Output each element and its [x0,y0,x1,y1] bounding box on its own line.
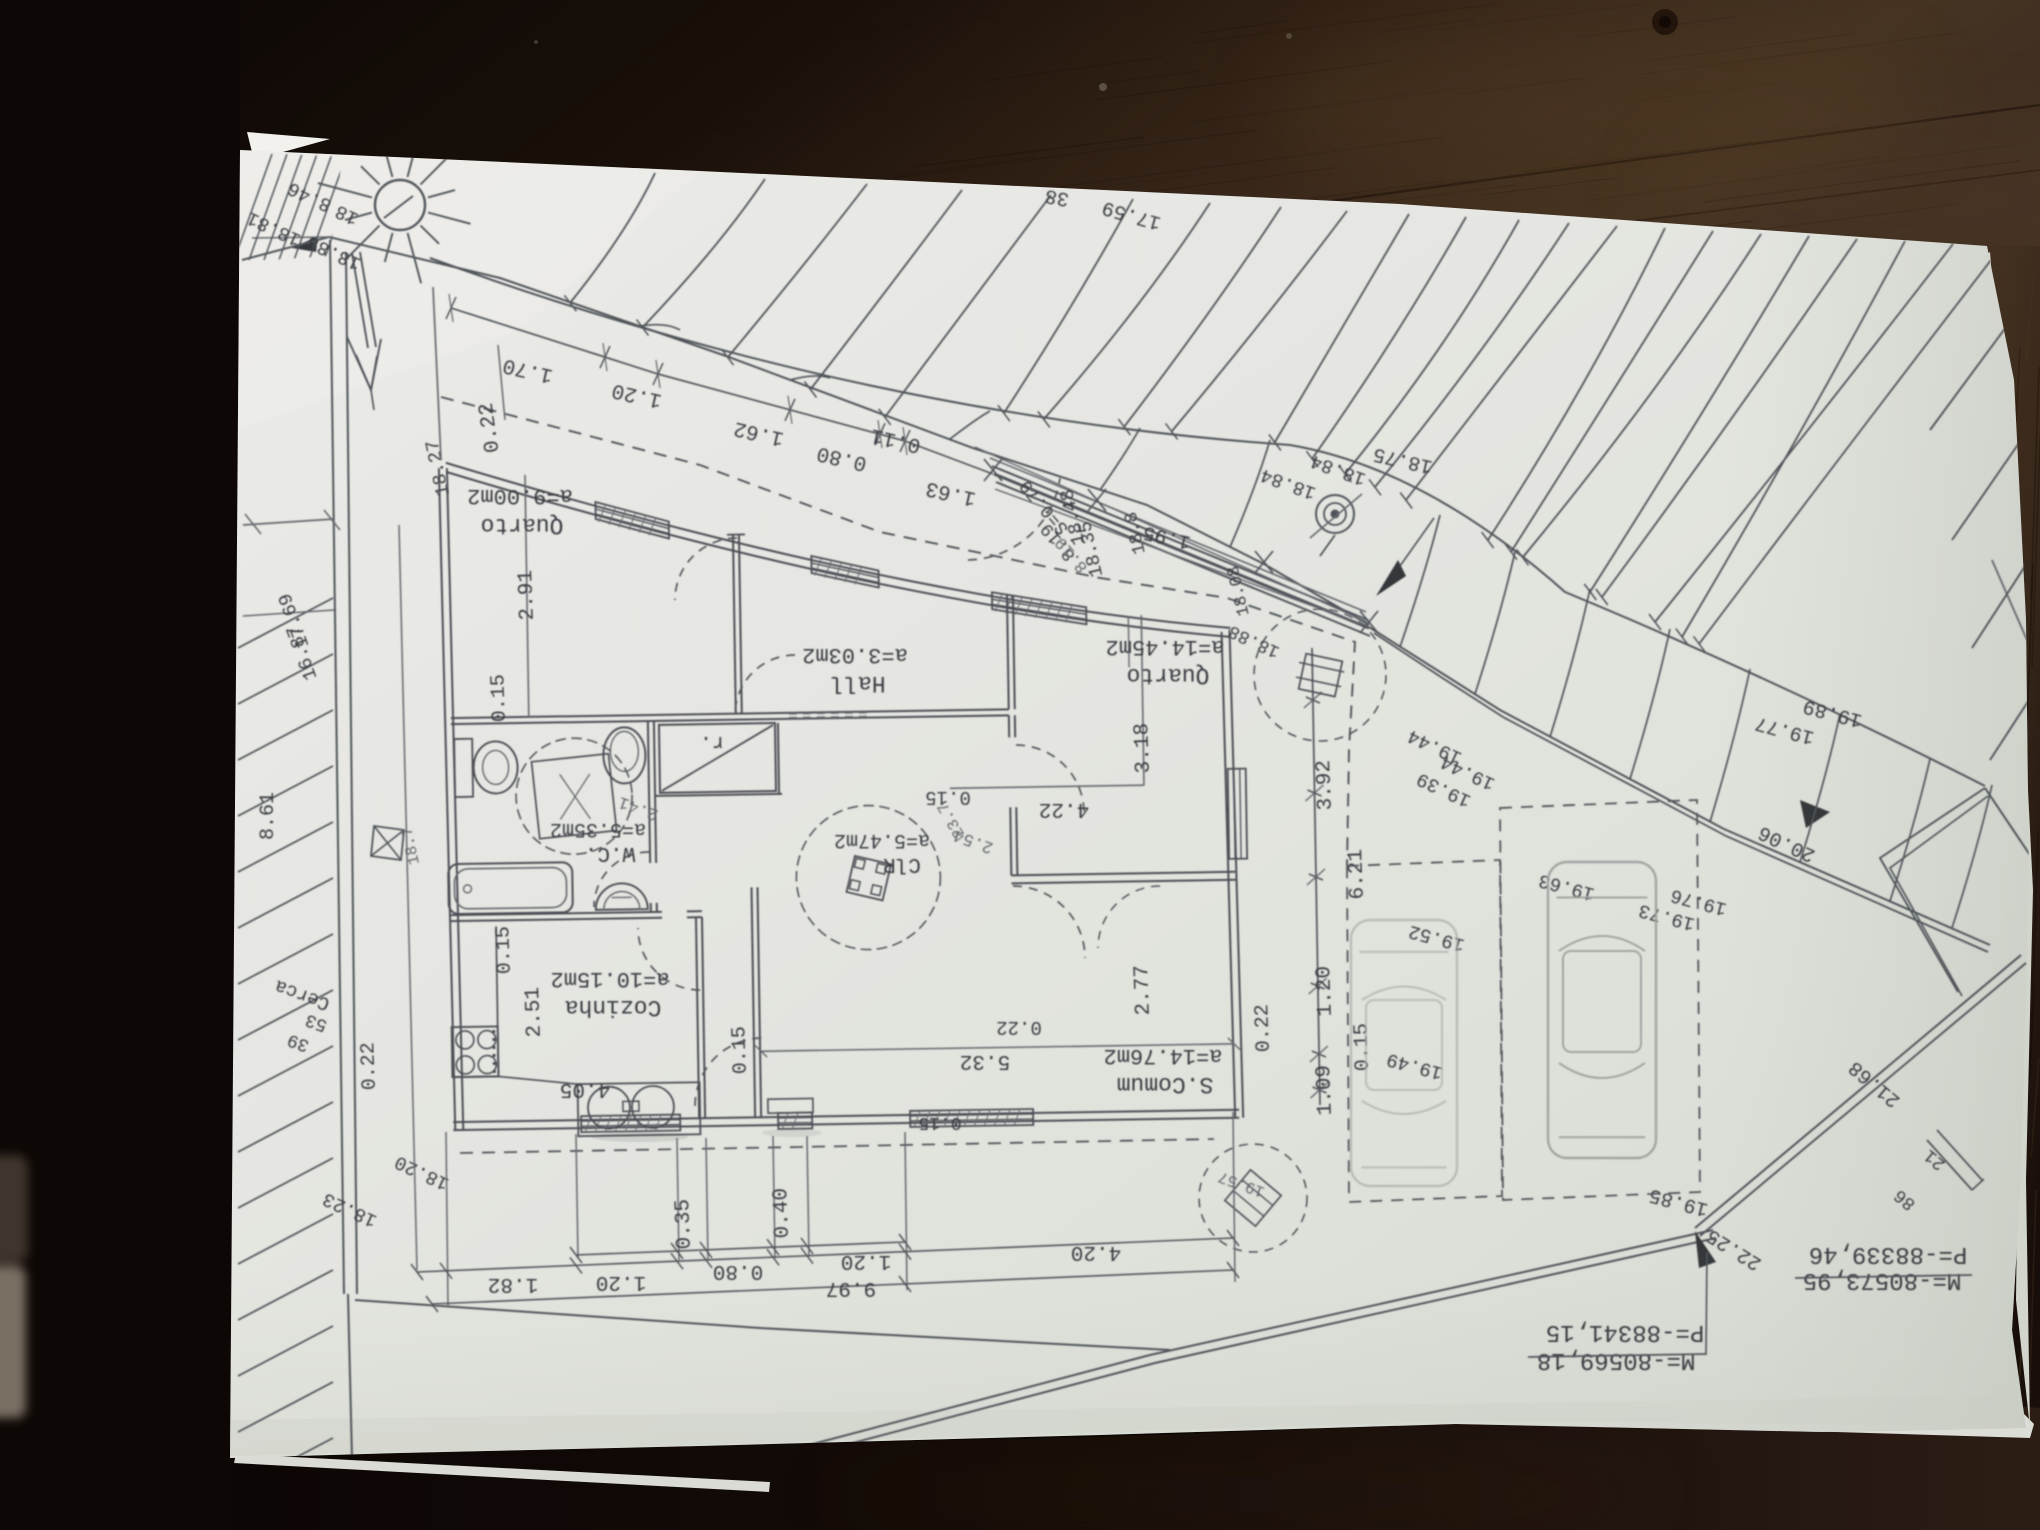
svg-text:0.80: 0.80 [713,1259,763,1282]
svg-text:2.91: 2.91 [515,570,540,621]
svg-text:5.32: 5.32 [960,1049,1010,1072]
svg-text:P=-88339,46: P=-88339,46 [1809,1240,1967,1267]
svg-text:1.20: 1.20 [841,1249,891,1272]
svg-text:0.22: 0.22 [357,1042,382,1091]
svg-text:9.97: 9.97 [826,1276,876,1299]
svg-text:0.15: 0.15 [918,1112,961,1132]
svg-text:ClR: ClR [883,852,921,875]
svg-text:Cozinha: Cozinha [564,994,661,1020]
svg-text:a=5.35m2: a=5.35m2 [550,817,646,840]
svg-text:0.35: 0.35 [672,1199,697,1250]
svg-text:0.15: 0.15 [487,674,512,723]
svg-text:0.22: 0.22 [1251,1004,1276,1053]
svg-text:8.61: 8.61 [257,792,280,840]
svg-text:4.05: 4.05 [560,1077,610,1100]
svg-text:P=-88341,15: P=-88341,15 [1546,1318,1704,1345]
svg-text:3.18: 3.18 [1131,723,1156,774]
svg-text:a=9.00m2: a=9.00m2 [467,483,573,508]
svg-text:a=3.03m2: a=3.03m2 [802,642,908,667]
svg-text:a=14.45m2: a=14.45m2 [1106,634,1225,659]
svg-text:0.15: 0.15 [1350,1023,1375,1072]
svg-text:a=10.15m2: a=10.15m2 [551,966,670,991]
svg-text:0.22: 0.22 [996,1016,1042,1038]
svg-text:1.82: 1.82 [488,1272,538,1295]
svg-text:M=-80573,95: M=-80573,95 [1803,1266,1961,1293]
svg-text:a=14.76m2: a=14.76m2 [1104,1043,1223,1068]
svg-text:1.09: 1.09 [1313,1065,1338,1116]
svg-text:Quarto: Quarto [1127,662,1210,688]
svg-text:M=-80569,18: M=-80569,18 [1537,1346,1695,1373]
svg-text:6.21: 6.21 [1345,849,1370,900]
svg-text:0.15: 0.15 [492,926,517,975]
svg-text:r.: r. [700,730,724,753]
svg-text:1.20: 1.20 [596,1270,646,1293]
svg-text:0.15: 0.15 [728,1026,753,1075]
svg-text:W.C.: W.C. [585,841,635,864]
svg-text:S.Comum: S.Comum [1117,1071,1214,1097]
svg-text:4.20: 4.20 [1071,1240,1121,1263]
svg-text:Quarto: Quarto [481,512,564,538]
svg-text:3.92: 3.92 [1313,760,1338,811]
svg-text:Hall: Hall [830,670,885,696]
svg-text:4.22: 4.22 [1039,797,1089,820]
svg-text:1.20: 1.20 [1313,966,1338,1017]
svg-text:0.40: 0.40 [770,1188,795,1239]
svg-text:a=5.47m2: a=5.47m2 [834,828,930,851]
svg-text:2.51: 2.51 [522,987,547,1038]
svg-text:2.77: 2.77 [1131,965,1156,1016]
